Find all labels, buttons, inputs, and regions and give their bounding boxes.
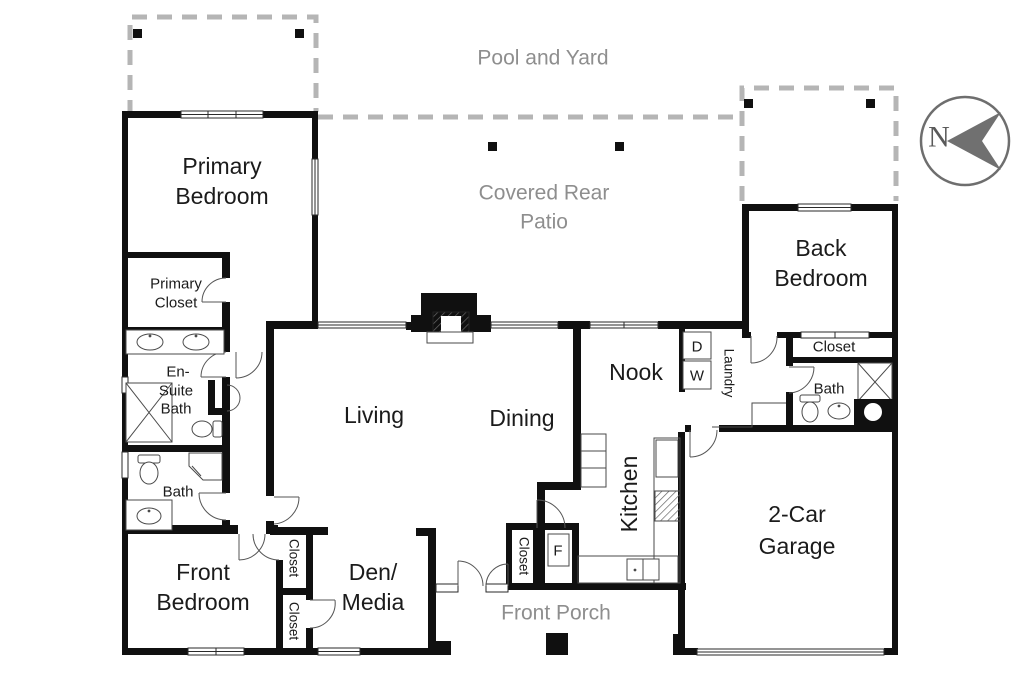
label-back-bedroom-2: Bedroom	[774, 265, 867, 291]
label-back-bedroom-1: Back	[795, 235, 847, 261]
entry-sill-left	[436, 584, 458, 592]
hall-step	[712, 403, 786, 427]
floor-plan-canvas: N Pool and Yard Covered Rear Patio Front…	[0, 0, 1024, 683]
patio-posts	[133, 29, 875, 655]
toilet-icon	[192, 421, 222, 437]
label-closet-den: Closet	[287, 602, 302, 641]
hearth	[427, 332, 473, 343]
toilet-icon	[138, 455, 160, 484]
corner-shower-icon	[189, 453, 222, 480]
porch-post	[546, 633, 568, 655]
label-dining: Dining	[489, 405, 554, 431]
compass: N	[921, 97, 1009, 185]
label-front-porch: Front Porch	[501, 602, 611, 625]
fireplace	[411, 293, 491, 343]
label-hall-bath: Bath	[163, 484, 194, 501]
label-pool-yard: Pool and Yard	[477, 47, 608, 70]
label-entry-closet: Closet	[517, 537, 532, 576]
label-patio-1: Covered Rear	[479, 182, 610, 205]
label-front-bedroom-2: Bedroom	[156, 589, 249, 615]
label-front-bedroom-1: Front	[176, 559, 230, 585]
label-living: Living	[344, 402, 404, 428]
label-garage-2: Garage	[759, 533, 836, 559]
label-garage-1: 2-Car	[768, 501, 826, 527]
north-arrow-icon	[947, 112, 1001, 170]
kitchen-peninsula	[581, 434, 606, 487]
shower-icon	[858, 363, 892, 401]
label-closet-front: Closet	[287, 539, 302, 578]
label-primary-closet-1: Primary	[150, 276, 202, 293]
label-patio-2: Patio	[520, 211, 568, 234]
label-washer: W	[690, 368, 705, 385]
label-kitchen: Kitchen	[616, 456, 642, 533]
label-nook: Nook	[609, 359, 663, 385]
label-dryer: D	[692, 339, 703, 356]
label-den-1: Den/	[349, 559, 398, 585]
toilet-icon	[800, 395, 820, 422]
stove-icon	[655, 491, 680, 521]
water-heater-icon	[854, 399, 893, 425]
label-back-bath: Bath	[814, 381, 845, 398]
floor-plan: N Pool and Yard Covered Rear Patio Front…	[0, 0, 1024, 683]
label-laundry: Laundry	[722, 349, 737, 398]
label-ensuite-1: En-	[166, 364, 189, 381]
label-closet-back: Closet	[813, 339, 856, 356]
label-ensuite-2: Suite	[159, 383, 193, 400]
label-ensuite-3: Bath	[161, 401, 192, 418]
compass-north-label: N	[928, 121, 950, 154]
kitchen-sink-icon	[627, 559, 659, 580]
label-primary-bedroom-1: Primary	[182, 153, 262, 179]
label-primary-bedroom-2: Bedroom	[175, 183, 268, 209]
entry-sill-right	[486, 584, 508, 592]
label-furnace: F	[553, 543, 562, 560]
fridge-icon	[656, 440, 678, 477]
label-den-2: Media	[342, 589, 405, 615]
label-primary-closet-2: Closet	[155, 295, 198, 312]
